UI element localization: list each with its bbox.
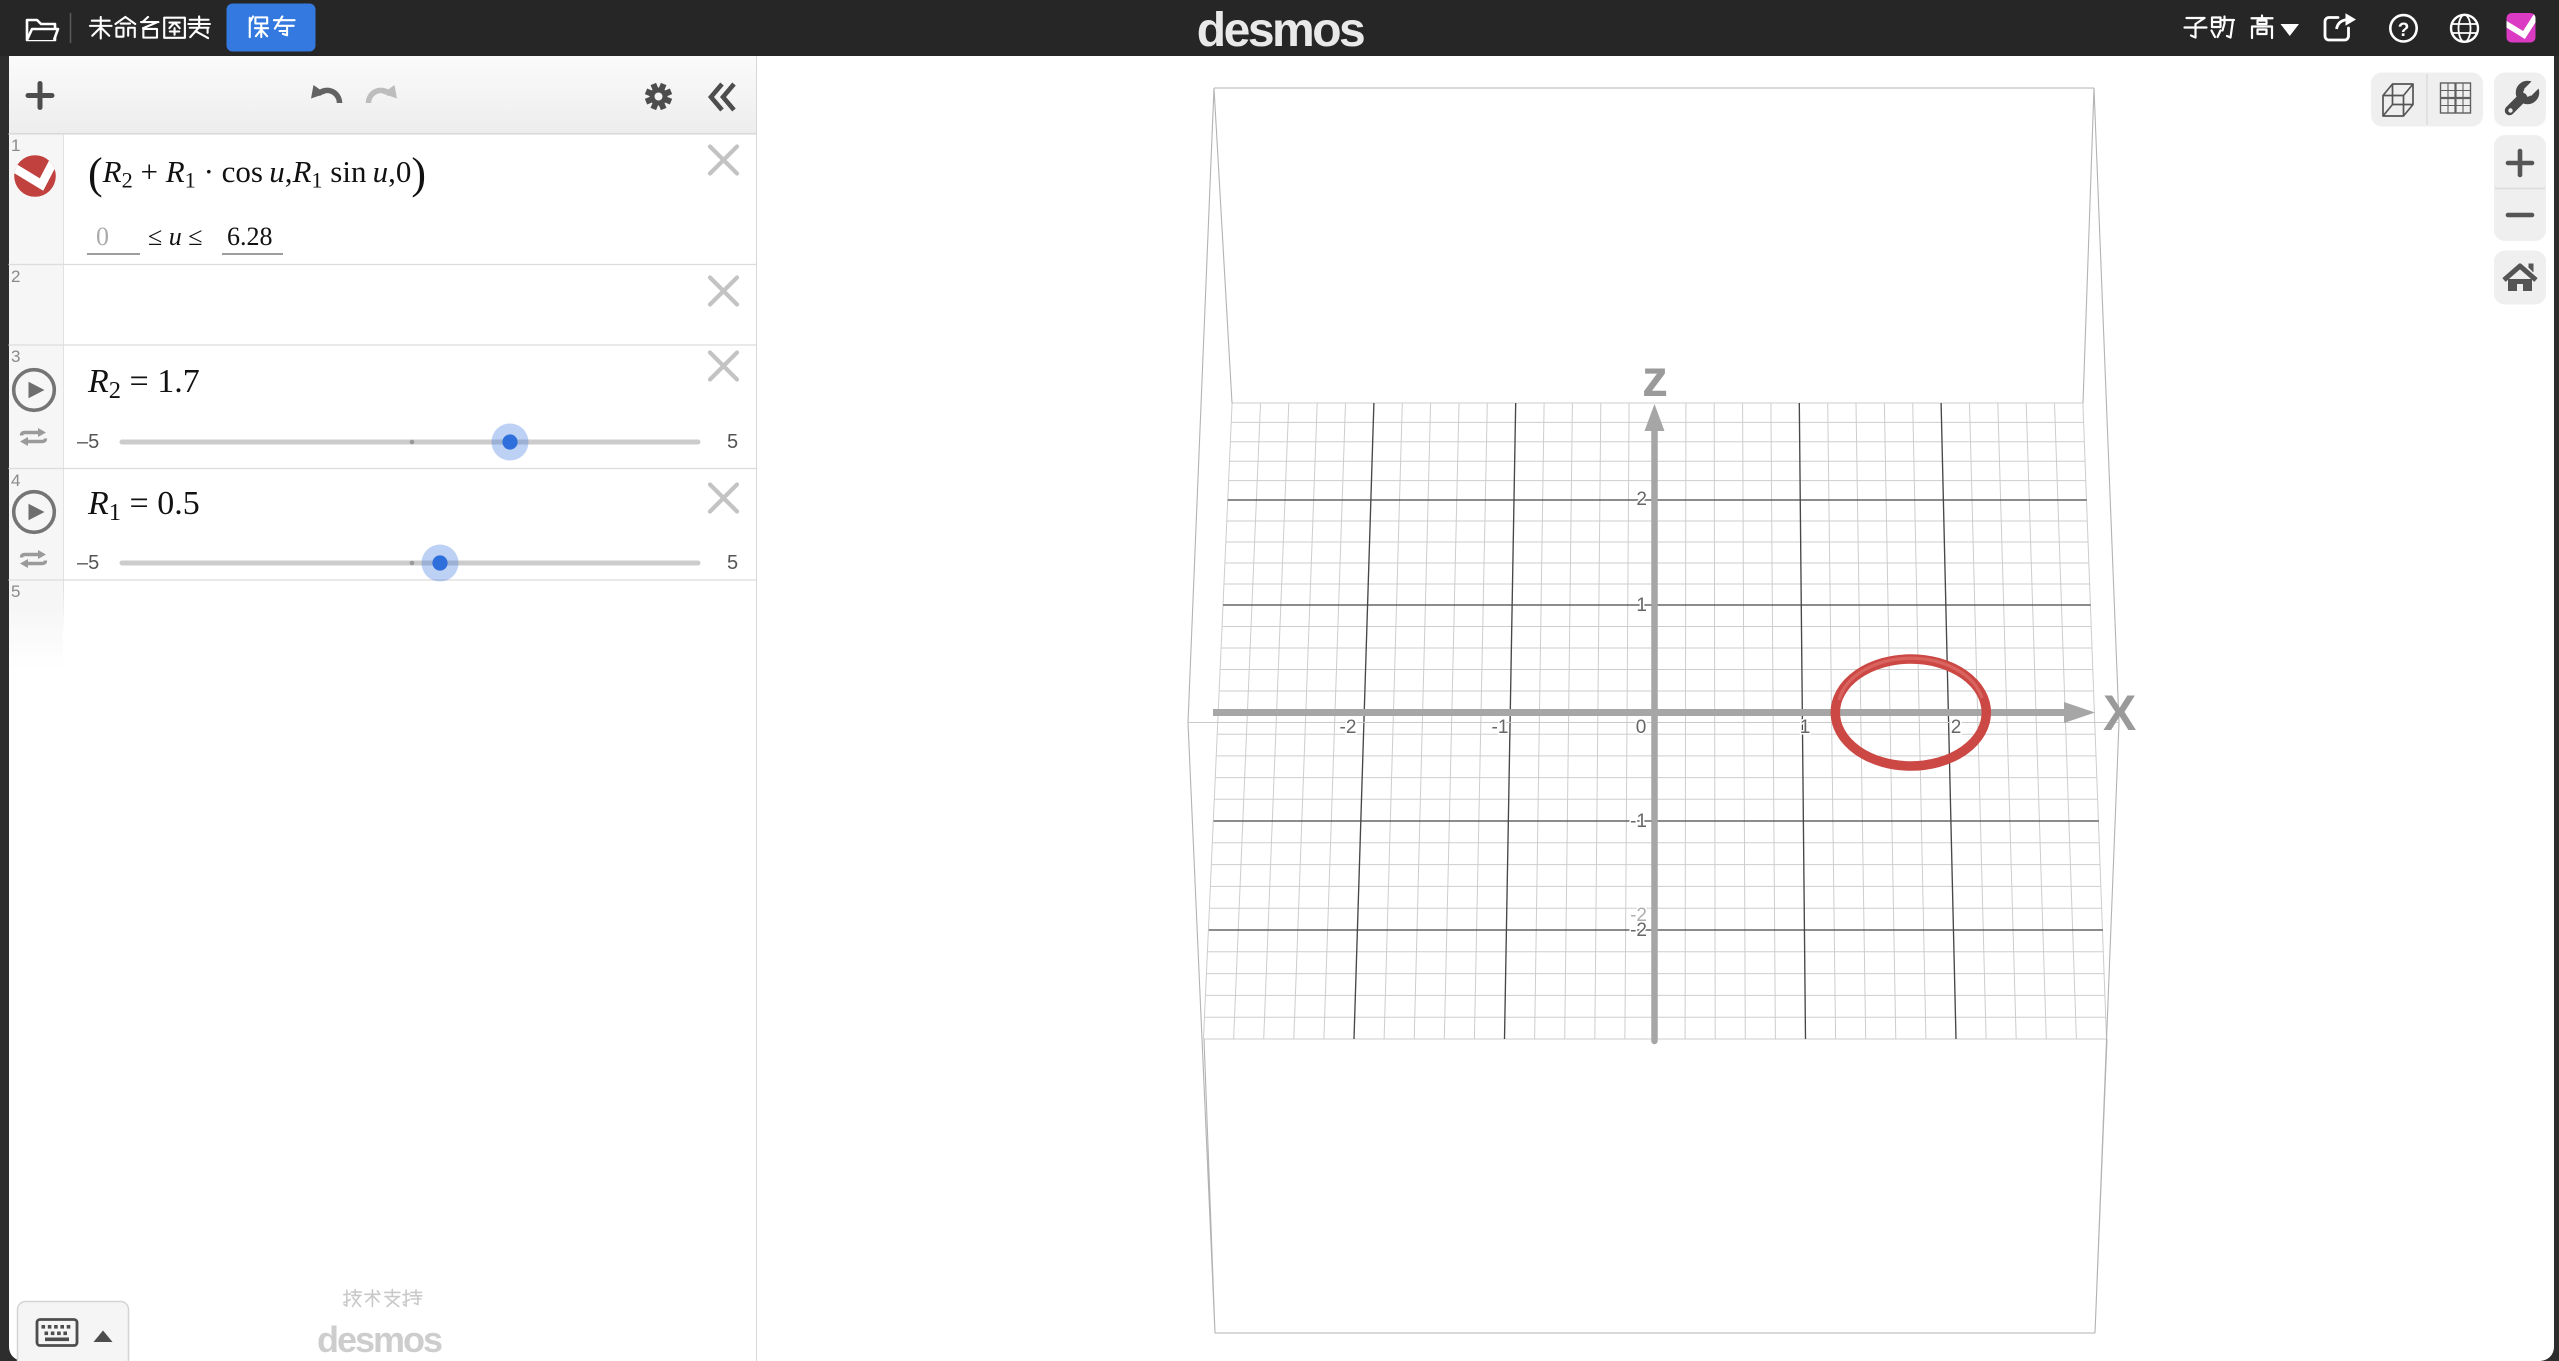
svg-text:1: 1 [1800,717,1811,738]
svg-text:X: X [2103,685,2136,741]
svg-text:desmos: desmos [1197,4,1364,56]
svg-text:2: 2 [1951,717,1962,738]
svg-text:-2: -2 [1340,717,1357,738]
svg-text:desmos: desmos [317,1319,442,1360]
svg-text:-1: -1 [1492,717,1509,738]
svg-text:2: 2 [1636,489,1647,510]
svg-text:0: 0 [1636,717,1647,738]
svg-text:1: 1 [1636,595,1647,616]
svg-text:?: ? [2398,20,2410,41]
svg-text:z: z [1642,350,1668,408]
svg-text:-2: -2 [1630,920,1647,941]
svg-text:-1: -1 [1630,811,1647,832]
